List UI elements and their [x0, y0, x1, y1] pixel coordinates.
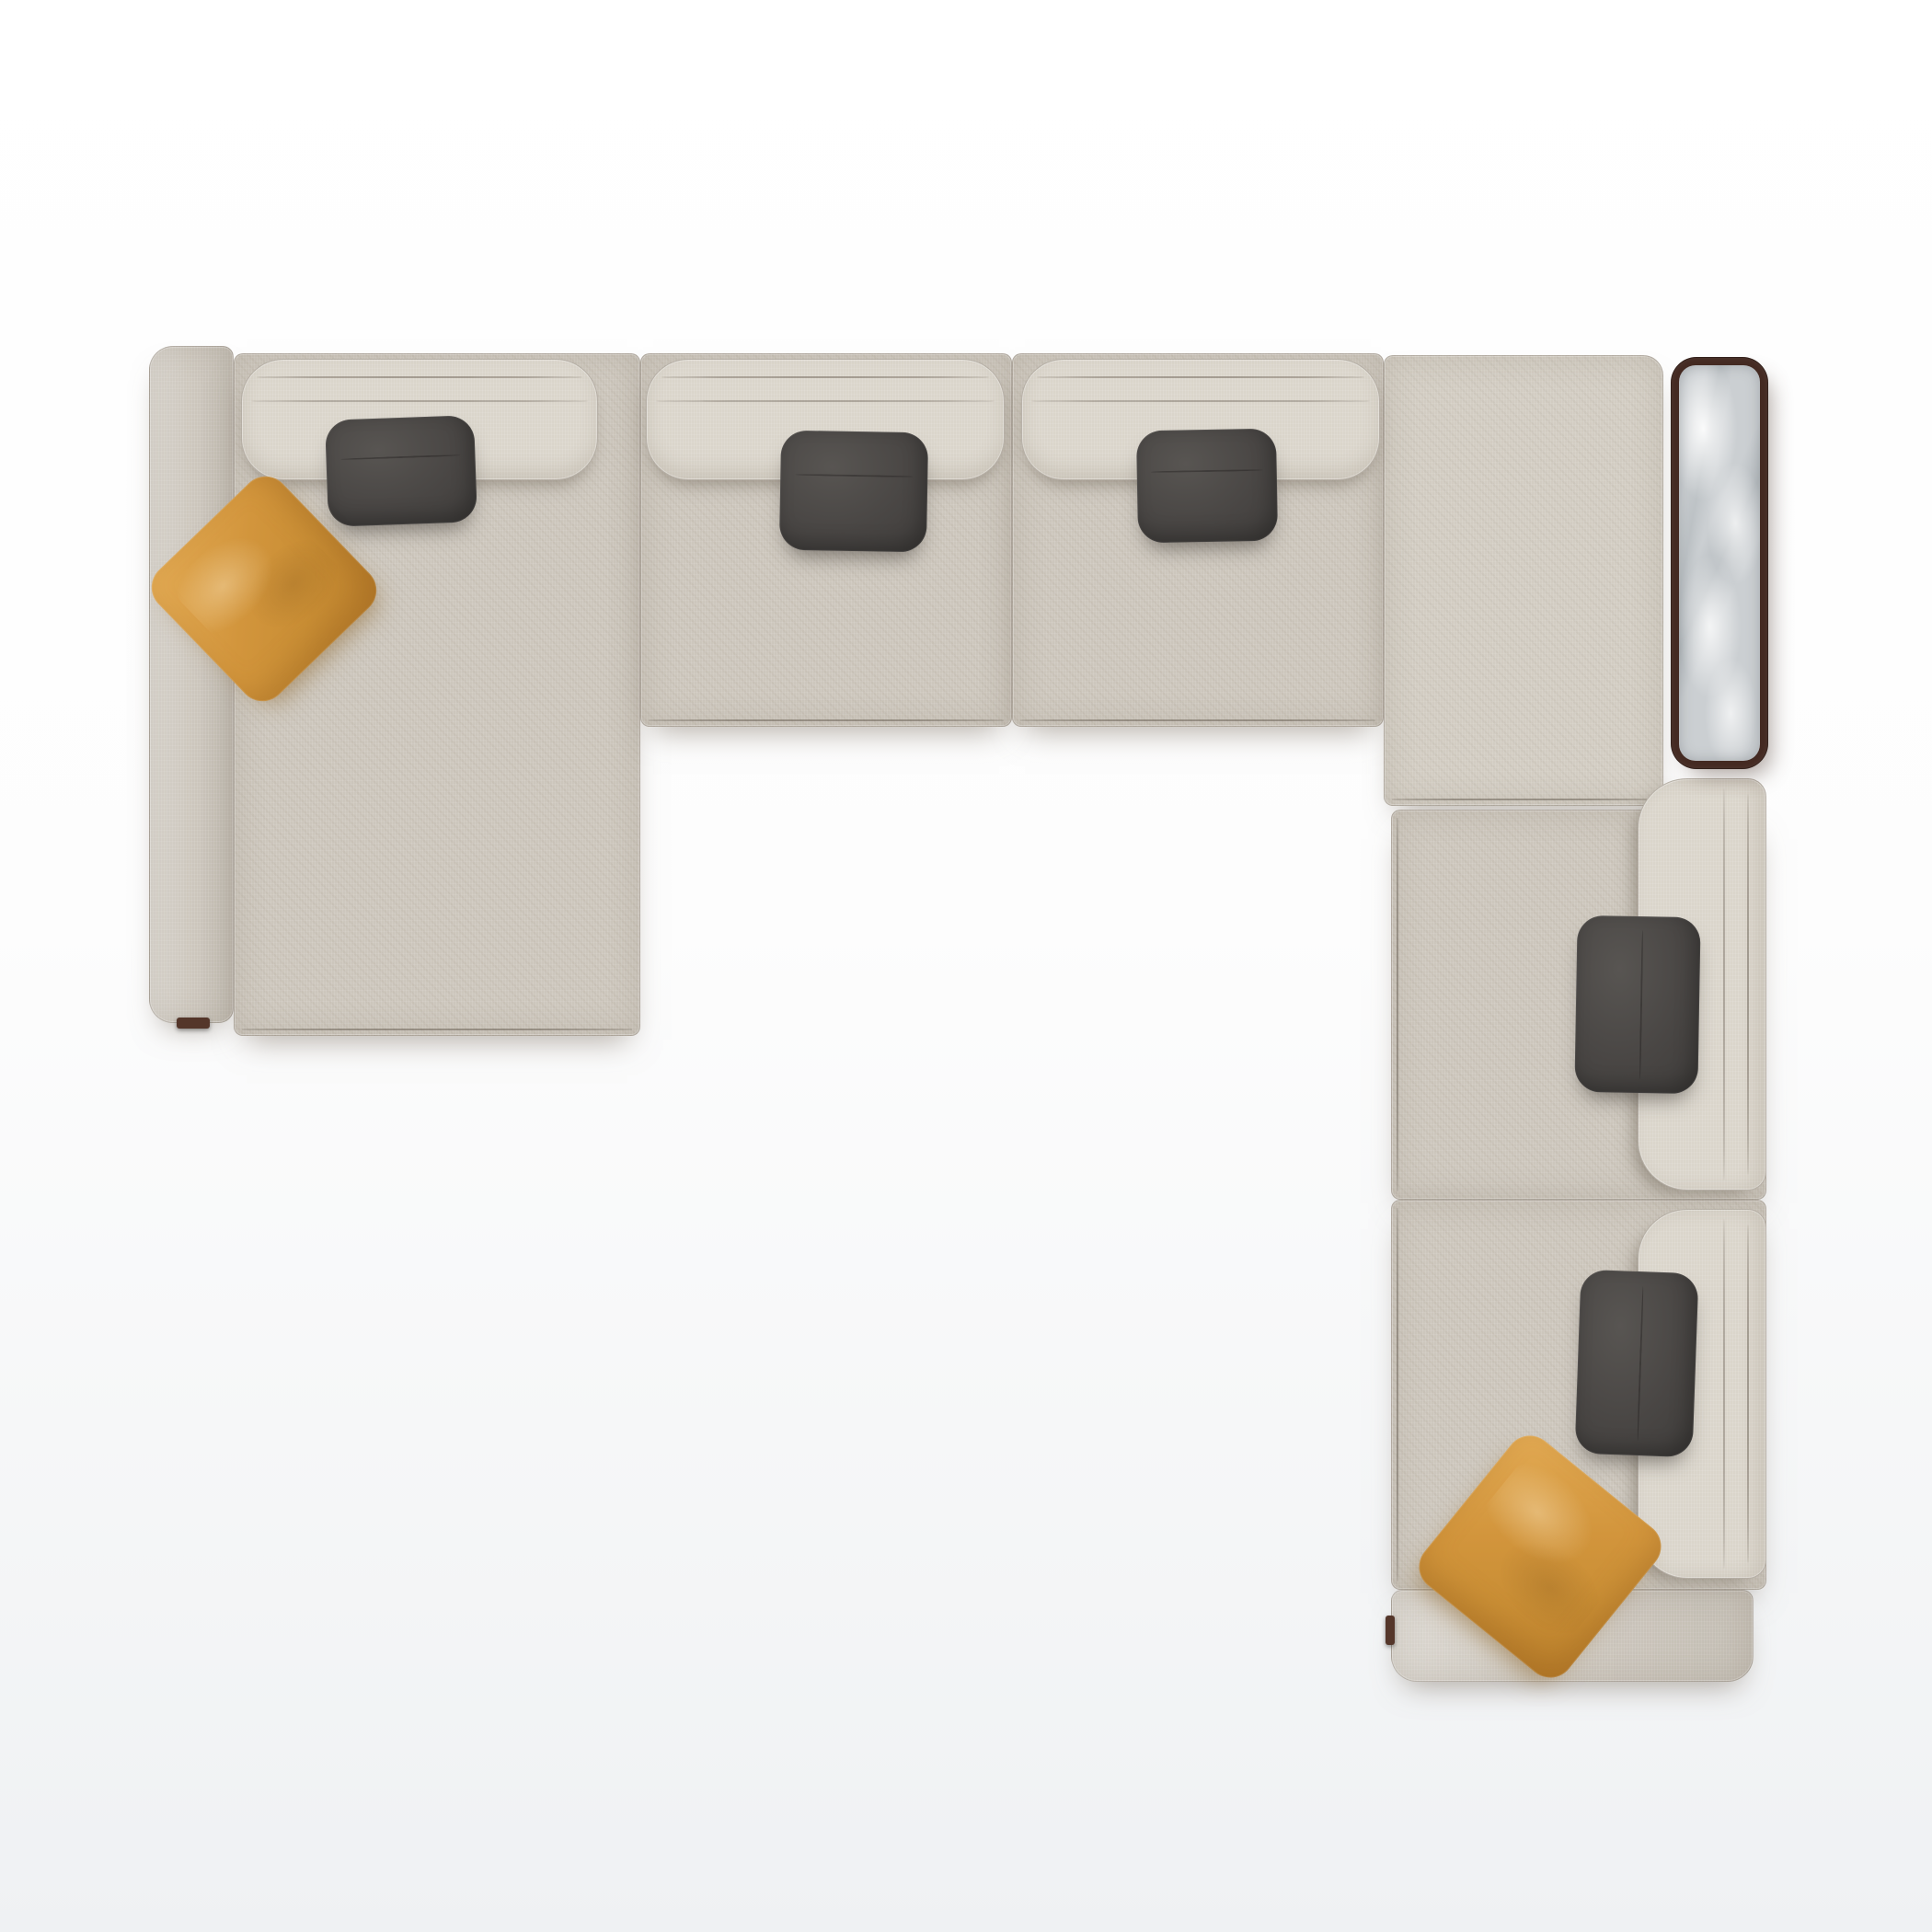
- dark-pillow-seat-3: [1136, 429, 1278, 544]
- dark-pillow-seat-2: [779, 431, 928, 553]
- foot-left-arm: [177, 1018, 210, 1029]
- corner-section: [1384, 355, 1663, 806]
- marble-top: [1679, 365, 1760, 761]
- dark-pillow-column-1: [1574, 915, 1700, 1094]
- product-render-canvas: { "scene": { "width": 2100, "height": 21…: [0, 0, 1932, 1932]
- dark-pillow-chaise: [325, 415, 477, 527]
- foot-bottom-arm: [1386, 1616, 1395, 1645]
- dark-pillow-column-2: [1575, 1270, 1699, 1457]
- side-table-frame: [1671, 357, 1768, 769]
- left-arm: [149, 346, 234, 1023]
- sectional-sofa-top-view: [0, 0, 1932, 1932]
